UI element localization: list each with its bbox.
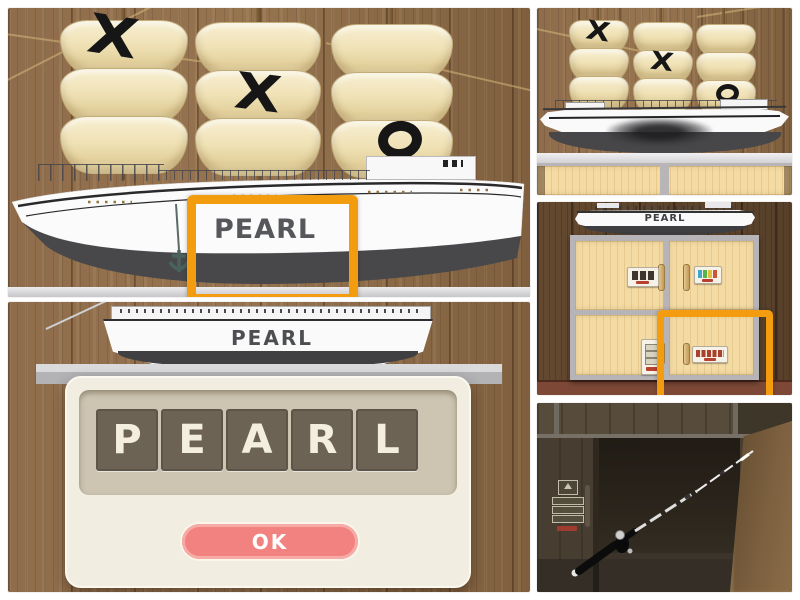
x-mark-icon: X <box>213 63 302 123</box>
color-button <box>708 270 712 278</box>
ok-button[interactable]: OK <box>182 524 358 559</box>
letter-tile[interactable]: P <box>96 409 158 471</box>
panel-word-input-dialog: PEARL P E A R L OK <box>8 302 530 592</box>
ship-name-text: PEARL <box>213 326 331 350</box>
color-button <box>713 270 717 278</box>
panel-fishing-rod <box>537 403 792 592</box>
hull-smudge[interactable] <box>607 118 712 146</box>
deck-strip <box>111 306 431 321</box>
bow-railing <box>38 164 164 181</box>
wall-shadow <box>784 166 792 195</box>
color-button <box>698 270 702 278</box>
letter-tile[interactable]: A <box>226 409 288 471</box>
deck-cabin <box>705 202 731 208</box>
door-handle[interactable] <box>683 264 690 291</box>
sail[interactable] <box>331 72 453 127</box>
panel-cabinet: PEARL <box>537 202 792 395</box>
letter-tile[interactable]: L <box>356 409 418 471</box>
deck-cabin <box>597 203 619 208</box>
letter-tile[interactable]: E <box>161 409 223 471</box>
lock-label <box>702 279 713 282</box>
digit-display <box>632 271 654 280</box>
panel-ship-overview: X X <box>537 8 792 195</box>
shelf <box>36 364 502 372</box>
cabinet-divider <box>660 166 669 195</box>
sail[interactable] <box>331 24 453 79</box>
lock-label <box>636 281 649 284</box>
bowsprit-line <box>46 302 115 330</box>
deck-details <box>120 309 420 313</box>
panel-ship-sails-closeup: X X PEARL <box>8 8 530 297</box>
digit-lock-panel[interactable] <box>627 267 659 287</box>
cabin-windows <box>443 160 463 167</box>
wall-shadow <box>537 166 545 195</box>
rigging-line <box>697 8 792 18</box>
shelf <box>537 153 792 163</box>
ship-name-text: PEARL <box>630 213 700 224</box>
door-handle[interactable] <box>658 264 665 291</box>
stern-cabin <box>366 156 476 180</box>
highlight-box <box>657 310 773 395</box>
letter-tile[interactable]: R <box>291 409 353 471</box>
highlight-box <box>187 195 358 297</box>
mid-railing <box>158 170 370 180</box>
deck-cabin <box>720 99 768 110</box>
fishing-rod[interactable] <box>537 403 792 592</box>
hull-bottom <box>583 226 747 235</box>
color-lock-panel[interactable] <box>694 266 722 284</box>
color-button <box>703 270 707 278</box>
sail[interactable] <box>60 68 188 123</box>
